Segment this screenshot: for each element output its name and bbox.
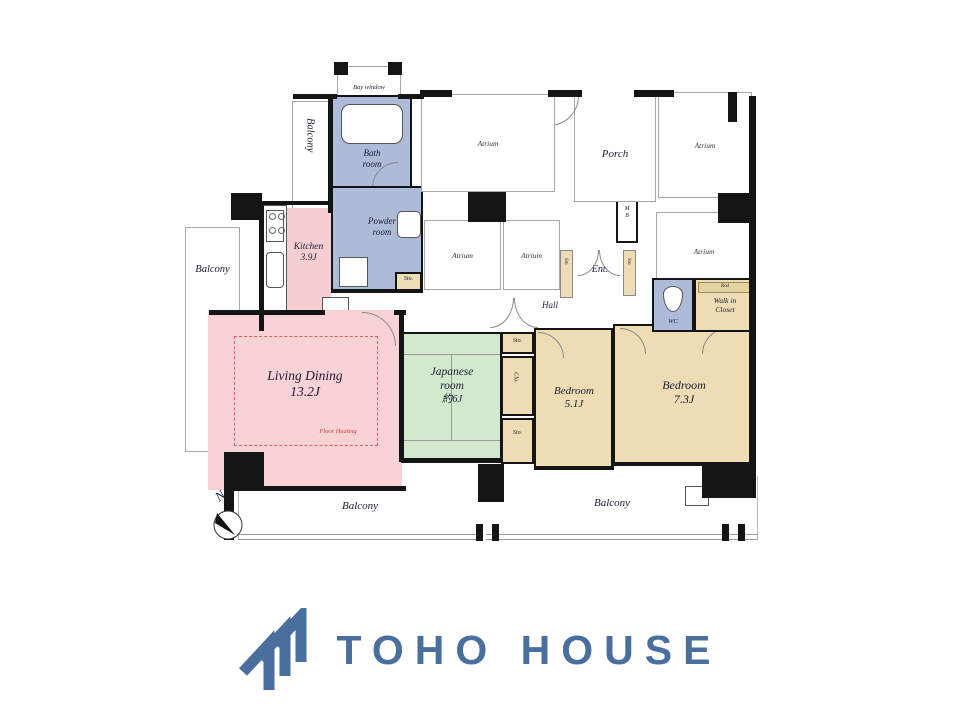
balcony-bottom-left [238, 488, 482, 540]
atrium-label: Atrium [476, 139, 501, 148]
shoe-cabinet-left-label: Sto. [562, 258, 568, 266]
walk-in-closet-label: Walk in Closet [697, 297, 753, 315]
kitchen-sink [266, 252, 284, 288]
atrium-label: Atrium [519, 251, 544, 260]
balcony-rail [486, 539, 758, 540]
atrium: Atrium [658, 92, 752, 198]
compass-icon [211, 505, 247, 543]
rail-post [492, 524, 499, 541]
atrium-label: Atrium [450, 251, 475, 260]
burner-icon [269, 227, 276, 234]
wall [534, 466, 614, 470]
closet-mid-label: Clo. [512, 372, 520, 383]
wall [399, 312, 404, 462]
outer-wall-right [749, 96, 756, 468]
shoe-cabinet-right [623, 250, 636, 296]
atrium-label: Atrium [693, 141, 718, 150]
wc-label: WC [654, 318, 692, 326]
storage-mid-bottom [501, 418, 534, 464]
wall [328, 96, 333, 213]
shoe-cabinet-right-label: Sto. [625, 258, 631, 266]
porch-label: Porch [577, 148, 653, 161]
rail-post [476, 524, 483, 541]
wall [728, 92, 737, 122]
atrium-label: Atrium [692, 247, 717, 256]
balcony-rail [238, 534, 482, 535]
stove [266, 210, 284, 242]
storage-mid-top-label: Sto. [501, 338, 534, 345]
washbasin [397, 211, 421, 238]
tatami-line [404, 354, 500, 355]
japanese-room-label: Japanese room 約6J [405, 366, 499, 407]
pillar [468, 192, 506, 222]
balcony-rail [238, 539, 482, 540]
pillar [718, 193, 754, 223]
atrium: Atrium [503, 220, 560, 290]
pillar [702, 462, 756, 498]
balcony-bottom-right-label: Balcony [552, 497, 672, 510]
wall [261, 201, 331, 205]
bedroom-5-label: Bedroom 5.1J [538, 385, 610, 411]
wall [420, 90, 452, 97]
storage-powder-label: Sto. [395, 276, 422, 283]
wall [548, 90, 582, 97]
wall [331, 289, 423, 293]
washing-machine [339, 257, 368, 287]
burner-icon [269, 213, 276, 220]
hall-door-arc [514, 298, 538, 328]
toho-house-logo-icon [239, 608, 311, 692]
floorplan-page: Balcony Bay window Bath room Sto. Powder… [0, 0, 960, 720]
bay-window-cap-right [388, 62, 402, 75]
burner-icon [278, 213, 285, 220]
wall [228, 486, 406, 491]
balcony-left-label: Balcony [186, 264, 239, 276]
closet-rod-label: Rod [698, 284, 752, 290]
kitchen-label: Kitchen 3.9J [287, 242, 330, 264]
wall [401, 458, 503, 463]
wall [634, 90, 674, 97]
pillar [478, 464, 504, 502]
bedroom-7-label: Bedroom 7.3J [616, 378, 752, 406]
rail-post [722, 524, 729, 541]
bathtub [341, 104, 403, 144]
pillar [231, 193, 262, 220]
hall-door-arc [490, 298, 514, 328]
rail-post [738, 524, 745, 541]
bay-window-cap-left [334, 62, 348, 75]
bay-window-label: Bay window [339, 84, 399, 92]
tatami-line [404, 440, 500, 441]
meter-box-label: M B [616, 206, 638, 220]
brand-name: TOHO HOUSE [337, 627, 722, 674]
floor-heating-label: Floor Heating [302, 428, 374, 436]
balcony-bottom-left-label: Balcony [300, 500, 420, 513]
atrium: Atrium [421, 94, 555, 192]
wall [209, 310, 325, 315]
brand-footer: TOHO HOUSE [0, 595, 960, 705]
closet-mid [501, 356, 534, 416]
balcony-top-left-label: Balcony [303, 118, 315, 152]
burner-icon [278, 227, 285, 234]
balcony-rail [486, 534, 758, 535]
atrium: Atrium [424, 220, 501, 290]
storage-mid-bottom-label: Sto. [501, 430, 534, 437]
living-dining-label: Living Dining 13.2J [229, 368, 381, 400]
